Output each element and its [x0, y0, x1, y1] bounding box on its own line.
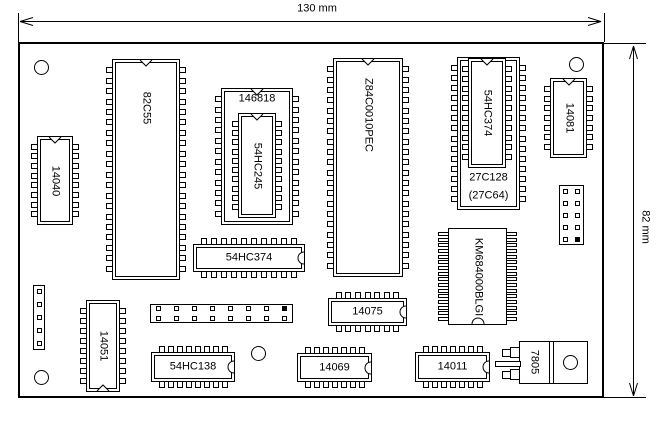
socket-27c128-pin — [451, 105, 458, 111]
chip-z84c0010pec-pin — [402, 87, 409, 93]
chip-14081-pin — [544, 134, 551, 140]
chip-14069-label: 14069 — [319, 362, 350, 373]
chip-14075-pin — [345, 292, 351, 299]
socket-27c128-pin — [451, 75, 458, 81]
chip-14051-pin — [80, 328, 87, 334]
chip-54hc374-eprom-socket-pin — [505, 115, 512, 121]
chip-54hc374-eprom-socket-pin — [462, 115, 469, 121]
socket-146818-pin — [292, 190, 299, 196]
chip-14075-pin — [345, 325, 351, 332]
pin-header-2x8-pin — [192, 306, 197, 311]
chip-z84c0010pec-pin — [402, 263, 409, 269]
pin-header-2x8-pin — [210, 306, 215, 311]
socket-27c128-pin — [519, 85, 526, 91]
chip-km684000blgi-pin — [438, 300, 449, 304]
chip-km684000blgi-pin — [438, 311, 449, 315]
socket-146818-pin — [292, 180, 299, 186]
chip-54hc245-pin — [275, 195, 282, 201]
chip-z84c0010pec-pin — [402, 66, 409, 72]
pin-header-2x8-pin — [228, 316, 233, 321]
chip-54hc374-pin — [261, 238, 267, 245]
chip-14075-pin — [365, 325, 371, 332]
chip-14040-pin — [72, 211, 79, 217]
chip-14051-label: 14051 — [98, 331, 109, 362]
pin-header-2x8-pin — [156, 316, 161, 321]
chip-82c55-pin — [106, 214, 113, 220]
chip-14081-pin — [544, 144, 551, 150]
chip-54hc138-pin — [177, 381, 183, 388]
chip-14040-pin — [31, 144, 38, 150]
chip-km684000blgi-pin — [506, 317, 517, 321]
pin-header-2x8-pin — [264, 306, 269, 311]
chip-z84c0010pec-pin — [402, 149, 409, 155]
socket-27c128-pin — [451, 95, 458, 101]
chip-82c55-pin — [179, 266, 186, 272]
chip-14069-pin — [350, 347, 356, 354]
chip-82c55-pin — [106, 161, 113, 167]
chip-z84c0010pec-pin — [402, 211, 409, 217]
chip-z84c0010pec-pin — [327, 242, 334, 248]
chip-14069-pin — [359, 381, 365, 388]
mounting-hole — [34, 370, 49, 385]
chip-14069-pin — [332, 347, 338, 354]
chip-54hc245-pin — [232, 139, 239, 145]
chip-54hc245-pin — [232, 158, 239, 164]
chip-z84c0010pec-pin — [327, 118, 334, 124]
chip-14011-pin — [441, 346, 447, 353]
chip-km684000blgi-pin — [438, 260, 449, 264]
chip-14011-pin — [441, 381, 447, 388]
chip-14040-pin — [72, 153, 79, 159]
pin-header-2x8-pin — [156, 306, 161, 311]
chip-km684000blgi-pin — [438, 238, 449, 242]
chip-14051-pin — [119, 338, 126, 344]
socket-27c128-pin — [451, 136, 458, 142]
pin-header-2x5-pin — [575, 213, 580, 218]
chip-54hc138-pin — [222, 381, 228, 388]
pin-header-2x5-pin — [563, 189, 568, 194]
chip-54hc374-label: 54HC374 — [226, 253, 272, 264]
pcb-layout-diagram: 130 mm 82 mm 82C551404014681854HC245Z84C… — [0, 0, 657, 422]
chip-z84c0010pec-pin — [402, 139, 409, 145]
chip-82c55-pin — [106, 234, 113, 240]
chip-14011-pin — [423, 381, 429, 388]
chip-54hc245-pin — [232, 186, 239, 192]
chip-14040-pin — [72, 202, 79, 208]
chip-14011-pin — [477, 346, 483, 353]
socket-146818-pin — [292, 211, 299, 217]
chip-54hc245-pin — [275, 176, 282, 182]
socket-146818-pin — [292, 127, 299, 133]
chip-54hc374-pin — [211, 238, 217, 245]
chip-54hc245-pin — [232, 121, 239, 127]
chip-82c55-pin — [106, 245, 113, 251]
chip-82c55-pin — [179, 214, 186, 220]
chip-14051-pin — [119, 368, 126, 374]
chip-54hc374-pin — [271, 238, 277, 245]
chip-54hc374-eprom-socket-pin — [462, 86, 469, 92]
chip-54hc374-pin — [261, 271, 267, 278]
chip-54hc245-pin — [275, 204, 282, 210]
chip-14011-pin — [468, 346, 474, 353]
chip-14075-pin — [393, 292, 399, 299]
pin-header-2x8-pin — [174, 316, 179, 321]
pin-header-2x5-pin — [575, 201, 580, 206]
chip-82c55-pin — [179, 182, 186, 188]
chip-54hc374-pin — [251, 238, 257, 245]
chip-14075-pin — [355, 325, 361, 332]
socket-27c128-pin — [519, 136, 526, 142]
chip-54hc374-eprom-socket-pin — [462, 125, 469, 131]
chip-z84c0010pec-pin — [402, 128, 409, 134]
chip-54hc374-pin — [241, 238, 247, 245]
chip-14081-pin — [586, 144, 593, 150]
chip-54hc374-eprom-socket-pin — [462, 66, 469, 72]
chip-14075-pin — [393, 325, 399, 332]
pin-header-2x8-pin — [282, 306, 287, 311]
chip-82c55-pin — [179, 161, 186, 167]
chip-km684000blgi-pin — [438, 317, 449, 321]
chip-54hc245-pin — [275, 139, 282, 145]
chip-82c55-pin — [179, 245, 186, 251]
chip-z84c0010pec-pin — [402, 252, 409, 258]
pin-header-1x5-pin — [37, 302, 42, 307]
chip-14081-pin — [544, 105, 551, 111]
chip-54hc138-pin — [195, 346, 201, 353]
chip-km684000blgi-pin — [506, 255, 517, 259]
chip-14069-pin — [341, 347, 347, 354]
socket-27c128-label: 27C128 — [469, 172, 508, 183]
chip-54hc374-pin — [241, 271, 247, 278]
chip-z84c0010pec-pin — [402, 232, 409, 238]
board-height-dimension-label: 82 mm — [640, 210, 651, 244]
chip-54hc245-pin — [232, 130, 239, 136]
socket-27c128-pin — [451, 115, 458, 121]
chip-54hc138-pin — [186, 381, 192, 388]
socket-146818-pin — [292, 148, 299, 154]
chip-82c55-pin — [179, 140, 186, 146]
chip-km684000blgi-pin — [438, 266, 449, 270]
chip-54hc374-eprom-socket-pin — [505, 76, 512, 82]
chip-14051-pin — [80, 348, 87, 354]
chip-54hc245-pin — [275, 186, 282, 192]
socket-146818-pin — [292, 200, 299, 206]
chip-82c55-pin — [179, 172, 186, 178]
chip-14069-pin — [323, 381, 329, 388]
chip-km684000blgi-pin — [438, 232, 449, 236]
socket-146818-pin — [292, 107, 299, 113]
chip-82c55-pin — [179, 67, 186, 73]
socket-27c128-pin — [519, 125, 526, 131]
pin-header-1x5-pin — [37, 289, 42, 294]
chip-km684000blgi-pin — [506, 243, 517, 247]
chip-14081-pin — [586, 86, 593, 92]
socket-27c128-pin — [451, 176, 458, 182]
chip-14011-pin — [432, 346, 438, 353]
chip-82c55-pin — [106, 151, 113, 157]
chip-82c55-pin — [179, 130, 186, 136]
chip-82c55-pin — [106, 203, 113, 209]
chip-z84c0010pec-pin — [327, 221, 334, 227]
chip-km684000blgi-pin — [506, 311, 517, 315]
chip-14075-pin — [384, 292, 390, 299]
socket-146818-pin — [215, 169, 222, 175]
socket-146818-pin — [215, 117, 222, 123]
chip-54hc374-pin — [231, 271, 237, 278]
pin-header-2x8-pin — [174, 306, 179, 311]
chip-14081-pin — [586, 105, 593, 111]
chip-54hc245-pin — [232, 176, 239, 182]
chip-14040-pin — [72, 182, 79, 188]
chip-14075-pin — [374, 325, 380, 332]
chip-82c55-pin — [179, 151, 186, 157]
chip-54hc374-eprom-socket-pin — [505, 125, 512, 131]
chip-z84c0010pec-pin — [402, 180, 409, 186]
chip-14081-label: 14081 — [563, 103, 574, 134]
chip-54hc374-eprom-socket-pin — [505, 144, 512, 150]
chip-km684000blgi-pin — [438, 283, 449, 287]
chip-82c55-pin — [179, 234, 186, 240]
chip-14011-pin — [450, 381, 456, 388]
socket-27c128-pin — [519, 75, 526, 81]
socket-27c128-pin — [519, 146, 526, 152]
chip-14069-pin — [350, 381, 356, 388]
chip-14069-pin — [341, 381, 347, 388]
chip-14069-pin — [359, 347, 365, 354]
chip-z84c0010pec-pin — [402, 108, 409, 114]
chip-14081-pin — [586, 115, 593, 121]
chip-54hc374-eprom-socket-label: 54HC374 — [482, 90, 493, 136]
pin-header-2x8-pin — [228, 306, 233, 311]
regulator-7805-lead — [495, 361, 521, 367]
chip-z84c0010pec-pin — [327, 128, 334, 134]
chip-14011-pin — [477, 381, 483, 388]
pin-header-2x5-pin — [563, 201, 568, 206]
socket-146818-pin — [215, 190, 222, 196]
chip-z84c0010pec-pin — [402, 221, 409, 227]
chip-82c55-pin — [106, 119, 113, 125]
chip-z84c0010pec-pin — [327, 180, 334, 186]
pin-header-2x8-package — [150, 304, 293, 323]
chip-54hc138-pin — [186, 346, 192, 353]
socket-27c128-pin — [451, 196, 458, 202]
chip-z84c0010pec-pin — [327, 263, 334, 269]
mounting-hole — [569, 57, 584, 72]
chip-14040-pin — [31, 182, 38, 188]
chip-14069-pin — [332, 381, 338, 388]
socket-146818-pin — [215, 138, 222, 144]
chip-14040-pin — [31, 173, 38, 179]
chip-82c55-pin — [106, 182, 113, 188]
chip-54hc245-pin — [232, 167, 239, 173]
chip-z84c0010pec-pin — [402, 118, 409, 124]
mounting-hole — [34, 60, 49, 75]
chip-14075-pin — [336, 325, 342, 332]
chip-z84c0010pec-pin — [327, 87, 334, 93]
chip-54hc138-pin — [213, 381, 219, 388]
chip-14051-pin — [119, 328, 126, 334]
socket-27c128-pin — [519, 196, 526, 202]
socket-27c128-pin — [451, 186, 458, 192]
socket-146818-pin — [215, 107, 222, 113]
socket-146818-pin — [215, 159, 222, 165]
chip-z84c0010pec-pin — [402, 77, 409, 83]
chip-km684000blgi-pin — [438, 277, 449, 281]
chip-14075-pin — [365, 292, 371, 299]
chip-km684000blgi-pin — [438, 272, 449, 276]
chip-14051-pin — [119, 378, 126, 384]
socket-27c128-pin — [519, 186, 526, 192]
chip-14011-pin — [459, 381, 465, 388]
pin-header-2x5-pin — [563, 237, 568, 242]
chip-82c55-pin — [106, 224, 113, 230]
chip-82c55-pin — [179, 109, 186, 115]
chip-14011-pin — [450, 346, 456, 353]
chip-54hc374-eprom-socket-pin — [505, 135, 512, 141]
chip-km684000blgi-pin — [506, 306, 517, 310]
chip-km684000blgi-pin — [506, 283, 517, 287]
chip-km684000blgi-pin — [438, 306, 449, 310]
chip-14051-pin — [119, 318, 126, 324]
chip-82c55-pin — [106, 78, 113, 84]
chip-z84c0010pec-pin — [327, 252, 334, 258]
chip-14069-pin — [323, 347, 329, 354]
chip-14069-pin — [314, 347, 320, 354]
chip-54hc138-pin — [168, 381, 174, 388]
chip-54hc374-eprom-socket-pin — [505, 154, 512, 160]
socket-146818-pin — [215, 96, 222, 102]
chip-km684000blgi-pin — [506, 260, 517, 264]
chip-14040-pin — [31, 211, 38, 217]
chip-54hc374-pin — [291, 238, 297, 245]
chip-14075-pin — [336, 292, 342, 299]
chip-z84c0010pec-pin — [402, 242, 409, 248]
pin-header-2x5-pin — [575, 237, 580, 242]
chip-km684000blgi-pin — [438, 243, 449, 247]
pin-header-2x5-pin — [575, 225, 580, 230]
socket-146818-pin — [292, 138, 299, 144]
chip-82c55-pin — [179, 119, 186, 125]
chip-54hc374-pin — [281, 238, 287, 245]
chip-z84c0010pec-pin — [327, 190, 334, 196]
socket-146818-pin — [215, 127, 222, 133]
socket-27c128-pin — [451, 85, 458, 91]
chip-54hc245-pin — [275, 158, 282, 164]
chip-82c55-pin — [179, 88, 186, 94]
chip-54hc138-pin — [222, 346, 228, 353]
chip-54hc374-eprom-socket-pin — [462, 135, 469, 141]
socket-27c128-pin — [519, 115, 526, 121]
chip-54hc138-pin — [213, 346, 219, 353]
socket-27c128-pin — [519, 65, 526, 71]
pin-header-2x8-pin — [192, 316, 197, 321]
chip-54hc374-pin — [201, 238, 207, 245]
chip-z84c0010pec-pin — [327, 108, 334, 114]
regulator-7805-lead — [510, 347, 520, 358]
chip-14075-pin — [374, 292, 380, 299]
chip-54hc374-pin — [201, 271, 207, 278]
chip-54hc138-pin — [177, 346, 183, 353]
regulator-7805-tab-divider — [549, 342, 550, 383]
chip-z84c0010pec-pin — [327, 77, 334, 83]
chip-14011-pin — [468, 381, 474, 388]
socket-27c128-pin — [451, 166, 458, 172]
chip-14051-pin — [119, 348, 126, 354]
socket-27c128-pin — [519, 166, 526, 172]
chip-km684000blgi-pin — [438, 249, 449, 253]
chip-14051-pin — [80, 368, 87, 374]
chip-82c55-pin — [106, 255, 113, 261]
socket-27c128-pin — [519, 176, 526, 182]
chip-14069-pin — [305, 347, 311, 354]
chip-14011-pin — [432, 381, 438, 388]
chip-km684000blgi-pin — [506, 266, 517, 270]
socket-146818-pin — [292, 169, 299, 175]
chip-54hc138-pin — [204, 381, 210, 388]
pin-header-2x5-pin — [563, 225, 568, 230]
chip-z84c0010pec-pin — [327, 149, 334, 155]
chip-54hc374-eprom-socket-pin — [462, 95, 469, 101]
chip-km684000blgi-pin — [506, 238, 517, 242]
chip-54hc245-pin — [275, 121, 282, 127]
chip-14040-pin — [31, 192, 38, 198]
chip-54hc138-pin — [159, 346, 165, 353]
chip-km684000blgi-pin — [506, 300, 517, 304]
chip-14051-pin — [80, 358, 87, 364]
chip-14081-pin — [544, 96, 551, 102]
chip-14051-pin — [80, 338, 87, 344]
chip-54hc374-eprom-socket-pin — [462, 144, 469, 150]
chip-54hc374-pin — [291, 271, 297, 278]
pin-header-1x5-pin — [37, 315, 42, 320]
regulator-7805-mounting-hole — [563, 355, 578, 370]
pin-header-2x8-pin — [246, 306, 251, 311]
chip-z84c0010pec-pin — [327, 139, 334, 145]
mounting-hole — [251, 346, 266, 361]
chip-14081-pin — [586, 134, 593, 140]
chip-82c55-pin — [179, 203, 186, 209]
chip-54hc245-pin — [232, 149, 239, 155]
socket-27c128-label2: (27C64) — [469, 191, 509, 202]
socket-146818-label: 146818 — [239, 93, 276, 104]
regulator-7805-tab-divider — [553, 342, 554, 383]
chip-14051-pin — [80, 378, 87, 384]
chip-z84c0010pec-pin — [327, 232, 334, 238]
chip-82c55-pin — [106, 130, 113, 136]
chip-82c55-pin — [106, 140, 113, 146]
socket-146818-pin — [215, 148, 222, 154]
chip-14069-pin — [314, 381, 320, 388]
chip-54hc374-eprom-socket-pin — [505, 95, 512, 101]
chip-km684000blgi-pin — [506, 294, 517, 298]
chip-14075-label: 14075 — [352, 307, 383, 318]
chip-z84c0010pec-pin — [327, 66, 334, 72]
chip-54hc245-pin — [275, 149, 282, 155]
chip-54hc374-pin — [251, 271, 257, 278]
pin-header-1x5-pin — [37, 341, 42, 346]
chip-z84c0010pec-pin — [402, 97, 409, 103]
pin-header-2x8-pin — [282, 316, 287, 321]
chip-54hc245-pin — [232, 204, 239, 210]
chip-14069-pin — [305, 381, 311, 388]
chip-14011-label: 14011 — [438, 362, 468, 373]
chip-82c55-pin — [179, 255, 186, 261]
socket-27c128-pin — [519, 156, 526, 162]
chip-82c55-pin — [106, 266, 113, 272]
socket-146818-pin — [292, 117, 299, 123]
chip-14081-pin — [544, 125, 551, 131]
regulator-7805-lead — [510, 369, 520, 380]
